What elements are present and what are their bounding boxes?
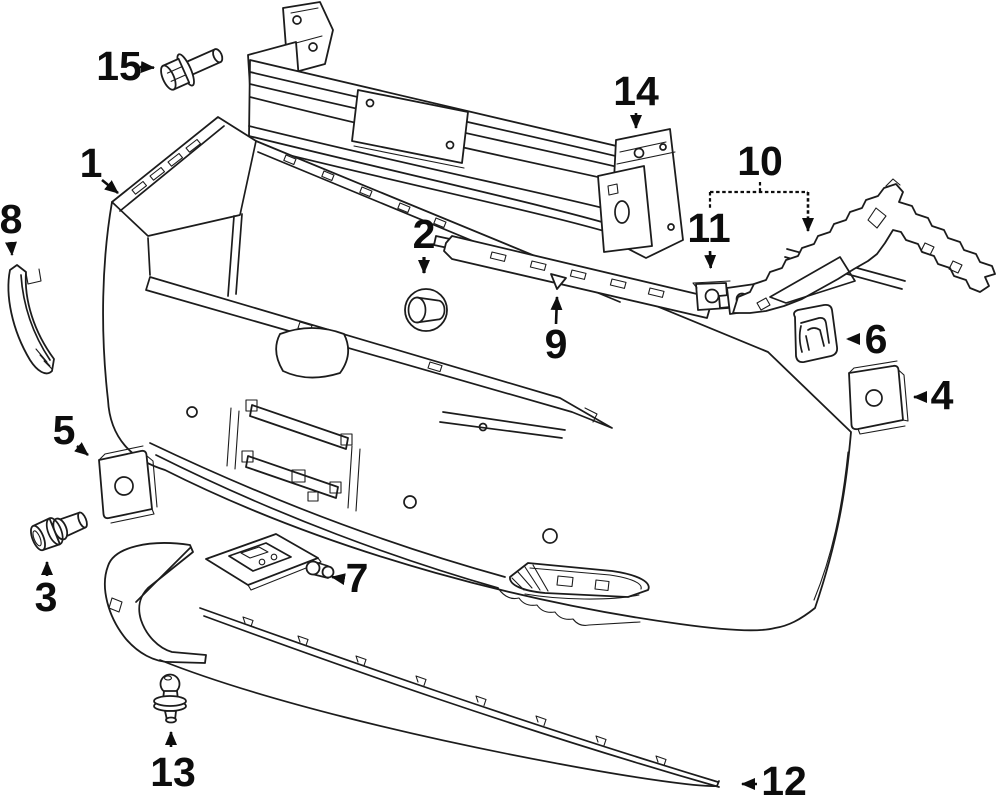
callout-label-11[interactable]: 11 [687,205,730,251]
callout-14[interactable]: 14 [613,68,659,128]
tab [26,269,41,284]
side-bracket [719,179,995,314]
callout-arrow-15 [140,67,154,68]
callout-label-6[interactable]: 6 [865,316,888,362]
callout-arrow-1 [102,180,118,193]
diagram-canvas: 1 2 3 4 5 6 7 8 9 10 11 12 [0,0,1000,808]
callout-1[interactable]: 1 [80,140,118,193]
callout-label-12[interactable]: 12 [761,758,807,804]
callout-7[interactable]: 7 [332,555,368,601]
parts-diagram: 1 2 3 4 5 6 7 8 9 10 11 12 [0,0,1000,808]
callout-label-7[interactable]: 7 [346,555,369,601]
callout-5[interactable]: 5 [53,407,88,455]
callout-4[interactable]: 4 [914,372,954,418]
callout-arrow-5 [77,446,88,455]
bottom-sweep [160,660,719,786]
callout-15[interactable]: 15 [96,43,154,89]
side-plate-right [849,361,908,434]
callout-label-9[interactable]: 9 [545,321,568,367]
callout-label-14[interactable]: 14 [613,68,659,114]
callout-arrow-8 [11,242,12,255]
side-trim [8,265,54,373]
stem-tip [166,718,176,723]
right-end-face [598,166,652,252]
callout-13[interactable]: 13 [150,732,196,795]
callout-label-8[interactable]: 8 [0,196,22,242]
outline [99,451,152,518]
callout-6[interactable]: 6 [847,316,887,362]
outline [849,366,903,429]
callout-12[interactable]: 12 [742,758,807,804]
callout-label-4[interactable]: 4 [931,372,954,418]
callout-arrow-7 [332,577,344,579]
callout-11[interactable]: 11 [687,205,730,268]
callout-label-2[interactable]: 2 [413,211,436,257]
pin-tip [323,567,334,578]
push-clip [154,675,186,723]
side-plate-left [99,446,157,523]
callout-label-1[interactable]: 1 [80,140,103,186]
callout-8[interactable]: 8 [0,196,22,255]
license-bracket [206,534,334,590]
grommet [405,289,447,331]
parking-sensor [28,506,91,553]
callout-arrow-9 [556,297,557,324]
strip-top [200,608,718,782]
flange-upper [154,696,186,706]
callout-label-15[interactable]: 15 [96,43,142,89]
outline [733,184,995,313]
callout-label-10[interactable]: 10 [737,138,783,184]
callout-label-13[interactable]: 13 [150,749,196,795]
pin-base [307,562,320,575]
badge-pad [276,328,348,378]
callout-label-5[interactable]: 5 [53,407,76,453]
air-duct-bracket [794,305,837,362]
callout-3[interactable]: 3 [35,562,58,620]
strip-bottom [204,616,719,787]
callout-label-3[interactable]: 3 [35,574,58,620]
callout-arrow-11 [710,251,711,268]
end-hook [105,543,206,663]
bolt [156,39,228,96]
bumper-cover [103,117,851,630]
